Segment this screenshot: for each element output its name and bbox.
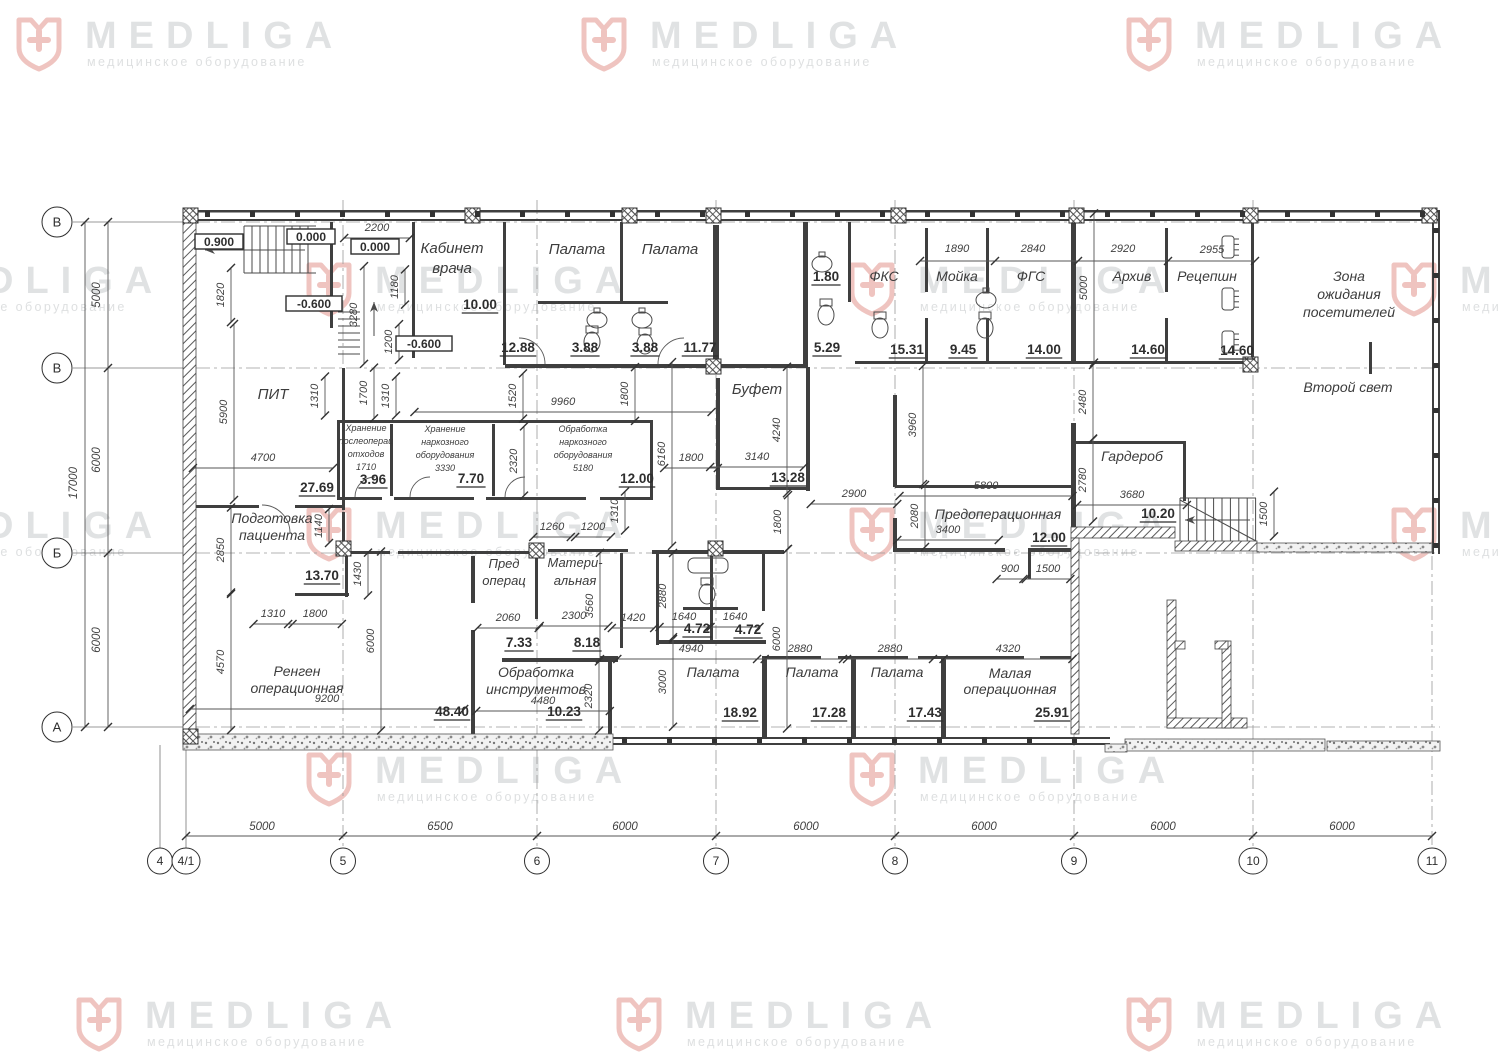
room-label: Малаяоперационная	[963, 665, 1057, 697]
dimension-value: 1890	[945, 243, 970, 255]
room-label: Зонаожиданияпосетителей	[1303, 268, 1395, 320]
dimension-value: 1310	[609, 498, 621, 523]
dimension-value: 2850	[215, 537, 227, 563]
medliga-logo-icon	[19, 20, 59, 69]
medliga-watermark: MEDLIGAмедицинское оборудование	[19, 15, 344, 69]
dimension-value: 3140	[745, 451, 770, 463]
toilet-fixture	[872, 312, 888, 338]
wall-segment	[720, 364, 806, 368]
room-label-line: пациента	[239, 527, 305, 543]
room-label: Архив	[1112, 268, 1152, 284]
dimension-value: 6000	[1150, 821, 1176, 833]
wall-segment	[762, 553, 765, 611]
level-mark: 0.000	[287, 229, 335, 244]
door-swing-arc	[658, 338, 684, 364]
dimension-value: 4700	[251, 452, 276, 464]
watermark-tagline-text: медицинское оборудование	[147, 1035, 367, 1049]
dimension-value: 1820	[215, 282, 227, 307]
room-label-line: Рецепшн	[1177, 268, 1237, 284]
room-label: ФГС	[1017, 268, 1046, 284]
wall-segment	[1369, 342, 1372, 374]
dimension-value: 1260	[540, 521, 565, 533]
wall-segment	[1071, 423, 1076, 529]
wall-segment	[620, 222, 623, 304]
dimension-value: 2200	[364, 222, 390, 234]
staircase-right	[1180, 498, 1256, 541]
axis-bubble: 10	[1239, 848, 1267, 874]
dimension-value: 9960	[551, 396, 576, 408]
sink-fixture	[632, 308, 652, 328]
dimension-vertical: 5900	[218, 320, 238, 504]
room-label: Подготовкапациента	[231, 510, 312, 543]
room-label-line: оборудования	[554, 450, 613, 460]
wall-segment	[925, 318, 928, 364]
axis-bubble-label: 6	[534, 854, 541, 868]
wall-segment	[851, 656, 856, 739]
facade-stud	[1433, 273, 1439, 278]
dimension-value: 6000	[793, 821, 819, 833]
facade-stud	[1150, 211, 1155, 217]
wall-segment	[620, 553, 623, 648]
dimension-value: 1500	[1036, 563, 1061, 575]
facade-stud	[295, 211, 300, 217]
axis-bubble-label: 10	[1246, 854, 1260, 868]
room-area-value: 17.43	[907, 705, 944, 721]
dimension-value: 1200	[383, 329, 395, 354]
dimension-value: 1800	[303, 608, 328, 620]
wall-segment	[505, 364, 717, 368]
watermark-brand-text: MEDLIGA	[1195, 15, 1454, 57]
column	[1243, 208, 1258, 223]
room-label: Обработканаркозногооборудования5180	[554, 424, 613, 473]
toilet-fixture	[977, 312, 993, 338]
wall-segment	[1165, 318, 1168, 364]
room-label-line: инструментов	[486, 681, 586, 697]
area-text: 12.00	[1032, 530, 1066, 545]
watermark-brand-text: MEDLIGA	[0, 505, 164, 547]
facade-stud	[937, 737, 942, 743]
area-text: 10.23	[547, 704, 581, 719]
hatched-wall	[1167, 600, 1176, 728]
dimension-value: 1800	[619, 381, 631, 406]
room-label: Гардероб	[1101, 448, 1164, 464]
axis-bubble-label: В	[53, 215, 62, 230]
column	[706, 359, 721, 374]
dimension-horizontal: 2060	[473, 612, 542, 632]
wall-segment	[710, 553, 713, 642]
chair-icon	[1222, 236, 1239, 258]
watermark-brand-text: MEDLIGA	[1460, 505, 1500, 547]
wall-segment	[806, 367, 810, 491]
hatched-wall	[1167, 718, 1247, 728]
facade-stud	[430, 211, 435, 217]
room-label-line: послеоперац	[339, 436, 394, 446]
wall-segment	[337, 420, 340, 499]
dimension-value: 1800	[772, 509, 784, 534]
wall-segment	[855, 361, 1253, 364]
facade-stud	[1105, 211, 1110, 217]
dimension-horizontal: 4320	[940, 643, 1077, 663]
wall-segment	[608, 660, 612, 735]
facade-stud	[1433, 363, 1439, 368]
room-area-value: 14.60	[1219, 343, 1256, 359]
facade-stud	[250, 211, 255, 217]
medliga-logo-icon	[852, 510, 892, 559]
room-label: Хранениенаркозногооборудования3330	[416, 424, 475, 473]
facade-stud	[655, 211, 660, 217]
dimension-value: 5900	[218, 399, 230, 424]
axis-bubble-label: 7	[713, 854, 720, 868]
concrete-strip	[183, 734, 613, 750]
dimension-horizontal: 9960	[410, 396, 715, 416]
room-area-value: 10.23	[546, 704, 583, 720]
area-text: 13.28	[771, 470, 805, 485]
dimension-value: 3560	[584, 593, 596, 618]
wall-segment	[337, 497, 382, 500]
facade-stud	[1420, 211, 1425, 217]
wall-segment	[803, 222, 808, 367]
facade-stud	[1015, 211, 1020, 217]
room-label-line: отходов	[348, 449, 385, 459]
area-text: 11.77	[683, 340, 716, 355]
concrete-strip	[1105, 744, 1127, 752]
room-label: Второй свет	[1303, 379, 1393, 395]
area-text: 1.80	[813, 269, 839, 284]
facade-stud	[745, 211, 750, 217]
axis-bubble: Б	[42, 538, 72, 568]
facade-stud	[802, 737, 807, 743]
dimension-value: 6000	[91, 627, 103, 653]
room-label: Рецепшн	[1177, 268, 1237, 284]
area-text: 7.70	[458, 471, 484, 486]
area-text: 17.28	[812, 705, 846, 720]
facade-stud	[1072, 737, 1077, 743]
facade-stud	[1433, 408, 1439, 413]
dimension-vertical: 1310	[309, 372, 329, 419]
wall-segment	[1183, 443, 1186, 501]
concrete-strip	[1327, 741, 1440, 751]
facade-stud	[475, 211, 480, 217]
facade-stud	[1433, 498, 1439, 503]
column	[336, 541, 351, 556]
room-label: Буфет	[732, 381, 782, 398]
room-area-value: 14.60	[1130, 342, 1167, 358]
medliga-watermark: MEDLIGAмедицинское оборудование	[584, 15, 909, 69]
room-label-line: Обработка	[559, 424, 608, 434]
wall-segment	[548, 549, 628, 552]
area-text: 25.91	[1035, 705, 1069, 720]
medliga-watermark: MEDLIGAмедицинское оборудование	[79, 995, 404, 1049]
axis-bubble-label: 5	[340, 854, 347, 868]
bottom-dimension-chain: 5000650060006000600060006000	[182, 821, 1436, 840]
medliga-logo-icon	[1129, 20, 1169, 69]
room-area-value: 3.96	[358, 472, 387, 488]
dimension-value: 1800	[679, 452, 704, 464]
area-text: 48.40	[435, 704, 469, 719]
room-label-line: Палата	[687, 664, 740, 680]
dimension-vertical: 1310	[380, 372, 400, 419]
room-label-line: Гардероб	[1101, 448, 1164, 464]
room-area-value: 10.00	[462, 297, 499, 313]
dimension-vertical: 1430	[352, 549, 372, 600]
room-label-line: Подготовка	[231, 510, 312, 526]
facade-stud	[982, 737, 987, 743]
dimension-value: 3280	[348, 302, 360, 327]
room-area-value: 4.72	[733, 622, 762, 638]
facade-stud	[565, 211, 570, 217]
area-text: 27.69	[300, 480, 334, 495]
room-area-value: 13.70	[304, 568, 341, 584]
column	[1069, 208, 1084, 223]
wall-segment	[1251, 222, 1254, 362]
facade-stud	[835, 211, 840, 217]
dimension-vertical: 3000	[657, 633, 677, 730]
medliga-logo-icon	[1394, 265, 1434, 314]
axis-bubble: 5	[331, 848, 356, 874]
room-label-line: Кабинет	[421, 240, 484, 257]
room-area-value: 25.91	[1034, 705, 1071, 721]
watermark-brand-text: MEDLIGA	[685, 995, 944, 1037]
watermark-layer: MEDLIGAмедицинское оборудованиеMEDLIGAме…	[0, 15, 1500, 1049]
dimension-horizontal: 2920	[1110, 243, 1136, 255]
dimension-value: 1430	[352, 561, 364, 586]
dimension-value: 3000	[657, 669, 669, 694]
column	[183, 729, 198, 744]
toilet-fixture	[688, 558, 728, 573]
dimension-vertical: 1520	[507, 369, 527, 422]
facade-stud	[1285, 211, 1290, 217]
room-label-line: оборудования	[416, 450, 475, 460]
wall-segment	[394, 497, 474, 500]
dimension-vertical: 1800	[619, 363, 639, 425]
dimension-value: 4240	[771, 417, 783, 442]
room-area-value: 1.80	[811, 269, 840, 285]
facade-stud	[1027, 737, 1032, 743]
wall-segment	[893, 395, 897, 487]
facade-stud	[712, 737, 717, 743]
room-label-line: Палата	[549, 241, 606, 258]
concrete-strip	[1257, 543, 1432, 552]
facade-stud	[1375, 211, 1380, 217]
dimension-value: 1310	[309, 383, 321, 408]
facade-stud	[880, 211, 885, 217]
watermark-tagline-text: медицинское оборудование	[1197, 55, 1417, 69]
room-label: Палата	[871, 664, 924, 680]
room-label: ФКС	[869, 268, 899, 284]
wall-segment	[398, 551, 486, 554]
wall-segment	[535, 557, 538, 619]
area-text: 12.00	[620, 471, 654, 486]
area-text: 14.60	[1131, 342, 1165, 357]
facade-stud	[1330, 211, 1335, 217]
watermark-tagline-text: медицинское оборудование	[1197, 1035, 1417, 1049]
room-area-value: 9.45	[948, 342, 977, 358]
dimension-value: 6500	[427, 821, 453, 833]
dimension-value: 6160	[656, 441, 668, 466]
area-text: 14.60	[1220, 343, 1254, 358]
facade-stud	[700, 211, 705, 217]
medliga-watermark: MEDLIGAмедицинское оборудование	[852, 750, 1177, 804]
hatched-wall	[183, 210, 196, 747]
dimension-value: 900	[1001, 563, 1020, 575]
dimension-value: 6000	[971, 821, 997, 833]
wall-segment	[600, 497, 653, 500]
dimension-value: 2880	[787, 643, 813, 655]
column	[622, 208, 637, 223]
wall-segment	[986, 318, 989, 364]
facade-stud	[757, 737, 762, 743]
facade-stud	[1433, 228, 1439, 233]
dimension-horizontal: 3140	[706, 451, 808, 471]
watermark-tagline-text: медицинское оборудование	[652, 55, 872, 69]
dimension-horizontal: 4700	[189, 452, 337, 472]
room-area-value: 7.33	[504, 635, 533, 651]
wall-segment	[295, 593, 349, 596]
facade-stud	[1433, 318, 1439, 323]
dimension-horizontal: 900	[993, 563, 1028, 583]
dimension-value: 1520	[507, 383, 519, 408]
room-label-line: альная	[554, 573, 597, 588]
room-area-value: 5.29	[812, 340, 841, 356]
watermark-tagline-text: медицинское оборудование	[1462, 545, 1500, 559]
dimension-vertical: 1800	[772, 491, 792, 553]
dimension-value: 1310	[380, 383, 392, 408]
dimension-value: 5000	[1078, 275, 1090, 300]
facade-stud	[1060, 211, 1065, 217]
facade-stud	[970, 211, 975, 217]
room-label-line: Ренген	[274, 663, 321, 679]
area-text: 12.88	[501, 340, 535, 355]
dimension-value: 1420	[621, 612, 646, 624]
watermark-brand-text: MEDLIGA	[85, 15, 344, 57]
wall-segment	[1071, 222, 1076, 364]
room-label-line: Зона	[1333, 268, 1365, 284]
dimension-value: 6000	[365, 628, 377, 653]
room-area-value: 11.77	[682, 340, 719, 356]
room-label-line: ФКС	[869, 268, 899, 284]
dimension-value: 1200	[581, 521, 606, 533]
facade-stud	[925, 211, 930, 217]
watermark-tagline-text: медицинское оборудование	[1462, 300, 1500, 314]
medliga-logo-icon	[1129, 1000, 1169, 1049]
column	[891, 208, 906, 223]
room-label: Палата	[549, 241, 606, 258]
facade-stud	[1433, 453, 1439, 458]
area-text: 3.88	[632, 340, 659, 355]
axis-bubble: 9	[1062, 848, 1087, 874]
dimension-horizontal: 1310	[249, 608, 296, 628]
facade-stud	[892, 737, 897, 743]
dimension-horizontal: 1890	[945, 243, 970, 255]
area-text: 5.29	[814, 340, 840, 355]
dimension-horizontal: 1800	[660, 452, 722, 472]
hatched-wall	[1071, 538, 1079, 734]
door-swing-arc	[505, 477, 525, 497]
room-area-value: 48.40	[434, 704, 471, 720]
room-label: Ренгеноперационная	[250, 663, 344, 696]
wall-segment	[925, 228, 928, 292]
wall-segment	[656, 640, 766, 644]
level-value: 0.000	[360, 240, 390, 254]
dimension-value: 5800	[974, 480, 999, 492]
dimension-value: 5000	[249, 821, 275, 833]
dimension-value: 2480	[1077, 389, 1089, 415]
medliga-watermark: MEDLIGAмедицинское оборудование	[1394, 260, 1500, 314]
area-text: 13.70	[305, 568, 339, 583]
dimension-horizontal: 1800	[284, 608, 346, 628]
facade-stud	[340, 211, 345, 217]
dimension-vertical: 1500	[1258, 488, 1278, 541]
room-label: Матери-альная	[547, 555, 603, 588]
wall-segment	[492, 424, 495, 496]
wall-segment	[345, 555, 348, 597]
room-area-value: 10.20	[1140, 506, 1177, 522]
dimension-vertical: 6000	[771, 546, 791, 733]
area-text: 7.33	[506, 635, 533, 650]
door-swing-arc	[410, 477, 430, 497]
dimension-value: 6000	[612, 821, 638, 833]
floor-plan-canvas: MEDLIGAмедицинское оборудованиеMEDLIGAме…	[0, 0, 1500, 1061]
facade-stud	[1240, 211, 1245, 217]
room-label-line: Палата	[642, 241, 699, 258]
wall-segment	[848, 222, 851, 302]
dimension-horizontal: 9200	[186, 693, 468, 713]
watermark-brand-text: MEDLIGA	[145, 995, 404, 1037]
room-label-line: наркозного	[559, 437, 607, 447]
room-area-value: 27.69	[299, 480, 336, 496]
watermark-brand-text: MEDLIGA	[0, 260, 164, 302]
room-area-value: 12.00	[619, 471, 656, 487]
room-label-line: Обработка	[498, 664, 574, 680]
room-area-value: 8.18	[572, 635, 601, 651]
hatched-wall	[1071, 527, 1175, 538]
room-label-line: 5180	[573, 463, 593, 473]
hatched-wall	[1175, 641, 1185, 649]
medliga-logo-icon	[852, 755, 892, 804]
dimension-value: 5000	[91, 282, 103, 308]
area-text: 3.96	[360, 472, 387, 487]
dimension-value: 1180	[389, 274, 401, 299]
watermark-brand-text: MEDLIGA	[650, 15, 909, 57]
toilet-fixture	[818, 299, 834, 325]
dimension-vertical: 2880	[657, 549, 677, 643]
area-text: 14.00	[1027, 342, 1061, 357]
room-label: Предоперац	[482, 556, 526, 588]
dimension-vertical: 1820	[215, 264, 235, 326]
room-label-line: наркозного	[421, 437, 469, 447]
room-label-line: Палата	[871, 664, 924, 680]
wall-segment	[1165, 228, 1168, 292]
wall-segment	[502, 658, 602, 662]
dimension-value: 1140	[313, 513, 325, 538]
room-label-line: Хранение	[424, 424, 466, 434]
axis-bubble-label: 11	[1426, 854, 1439, 868]
area-text: 17.43	[908, 705, 942, 720]
medliga-watermark: MEDLIGAмедицинское оборудование	[1129, 995, 1454, 1049]
dimension-value: 2880	[877, 643, 903, 655]
room-area-value: 3.88	[630, 340, 659, 356]
area-text: 4.72	[735, 622, 761, 637]
facade-stud	[622, 737, 627, 743]
column	[183, 208, 198, 223]
wall-segment	[986, 228, 989, 292]
watermark-tagline-text: медицинское оборудование	[87, 55, 307, 69]
facade-stud	[667, 737, 672, 743]
room-label-line: посетителей	[1303, 304, 1395, 320]
dimension-vertical: 6160	[656, 358, 676, 550]
wall-segment	[1028, 551, 1031, 579]
medliga-watermark: MEDLIGAмедицинское оборудование	[0, 505, 164, 559]
